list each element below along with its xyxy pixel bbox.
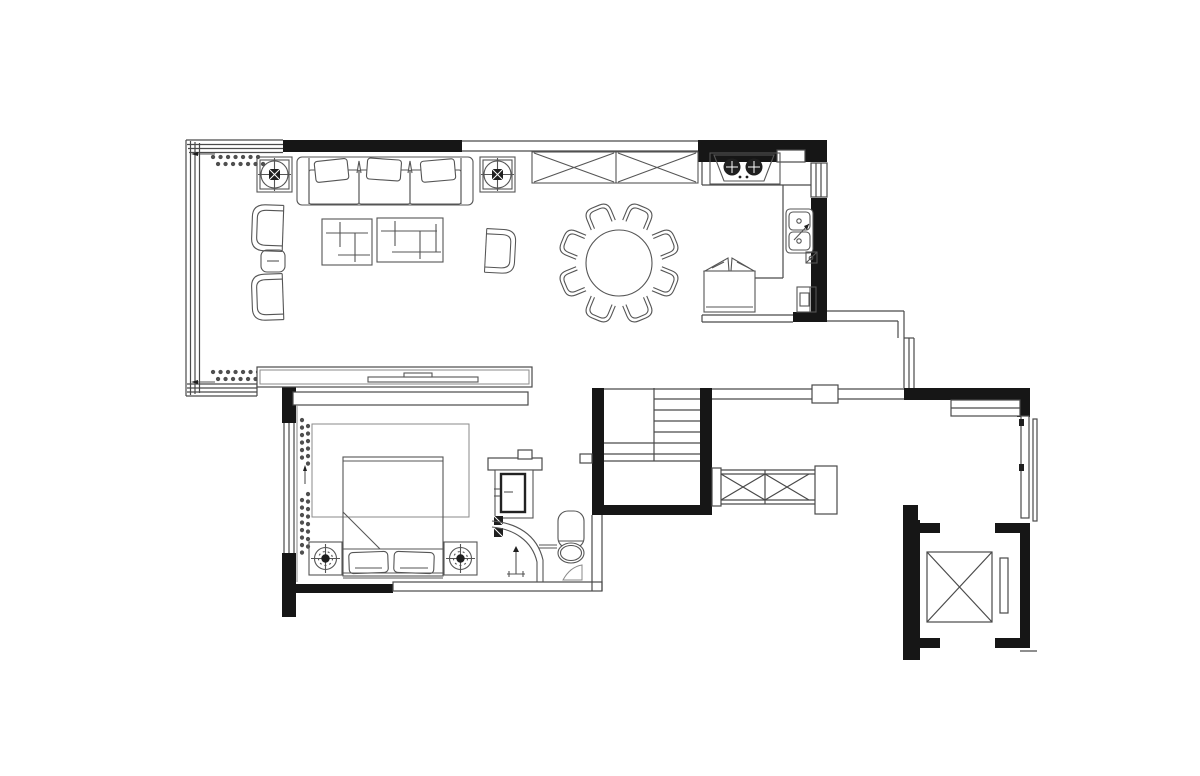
wall-top-left	[283, 140, 462, 152]
wall-top-right	[698, 140, 827, 162]
pillow-right	[394, 551, 435, 573]
wall-elevator-right	[1020, 523, 1030, 648]
wall-stair-bottom	[592, 505, 712, 515]
pillow-left	[349, 551, 389, 573]
wall-hall-top	[904, 388, 1030, 400]
throw-pillows	[314, 158, 456, 183]
wall-elevator-stub-tl	[920, 523, 940, 533]
floor-plan-sheet	[0, 0, 1200, 776]
railing-end-post	[815, 466, 837, 514]
wall-stair-left	[592, 388, 604, 515]
wall-elevator-stub-bl	[920, 638, 940, 648]
column-corridor	[903, 505, 918, 520]
wall-stair-right	[700, 388, 712, 515]
railing-post	[712, 468, 721, 506]
floor-plan-canvas	[0, 0, 1200, 776]
door-frame-post	[812, 385, 838, 403]
wall-elevator-left	[903, 520, 920, 660]
storage-cabinet	[532, 152, 698, 183]
wall-elevator-stub-tr	[995, 523, 1020, 533]
wall-bathroom-bottom	[393, 582, 602, 591]
double-sink	[786, 209, 813, 253]
wall-elevator-stub-br	[995, 638, 1020, 648]
kitchen-window	[811, 163, 827, 197]
range-hood-notch	[777, 150, 805, 162]
wall-stub	[580, 454, 592, 463]
wall-bedroom-bottom	[282, 584, 393, 593]
wall-bedroom-top	[293, 392, 528, 405]
wall-kitchen-bottom	[793, 312, 827, 322]
